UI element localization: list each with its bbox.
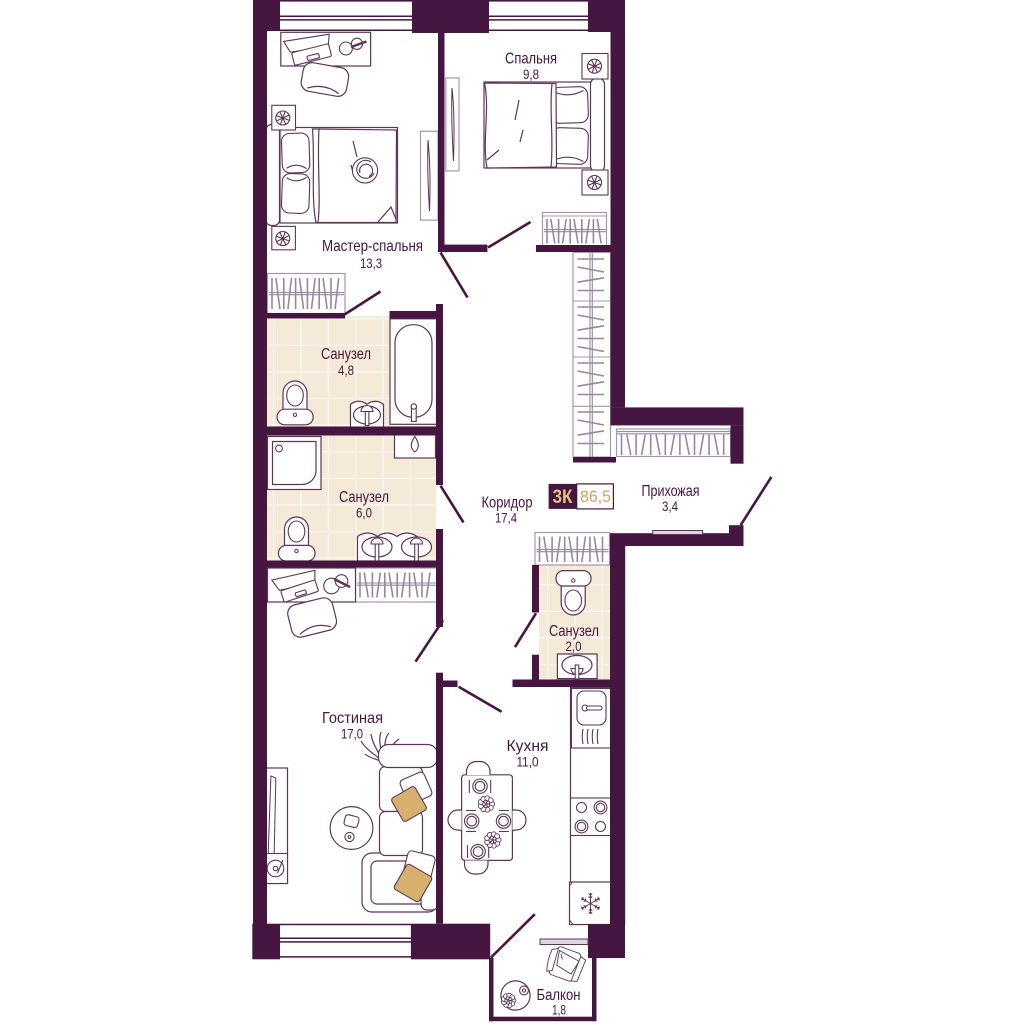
svg-text:Санузел: Санузел (339, 489, 389, 506)
svg-text:9,8: 9,8 (523, 66, 539, 82)
svg-text:4,8: 4,8 (338, 362, 354, 378)
svg-text:Гостиная: Гостиная (322, 710, 383, 727)
svg-text:Санузел: Санузел (321, 346, 371, 363)
svg-text:3К: 3К (553, 487, 573, 508)
svg-text:17,0: 17,0 (341, 726, 363, 742)
svg-text:Кухня: Кухня (507, 738, 549, 755)
svg-text:2,0: 2,0 (566, 638, 582, 654)
svg-text:1,8: 1,8 (552, 1002, 566, 1018)
svg-text:17,4: 17,4 (495, 510, 517, 526)
svg-text:6,0: 6,0 (356, 505, 372, 521)
svg-text:11,0: 11,0 (517, 754, 539, 770)
svg-text:86,5: 86,5 (580, 488, 611, 506)
svg-text:Спальня: Спальня (505, 51, 557, 68)
svg-text:Мастер-спальня: Мастер-спальня (322, 238, 423, 255)
svg-text:13,3: 13,3 (360, 255, 382, 271)
svg-text:3,4: 3,4 (662, 498, 678, 514)
